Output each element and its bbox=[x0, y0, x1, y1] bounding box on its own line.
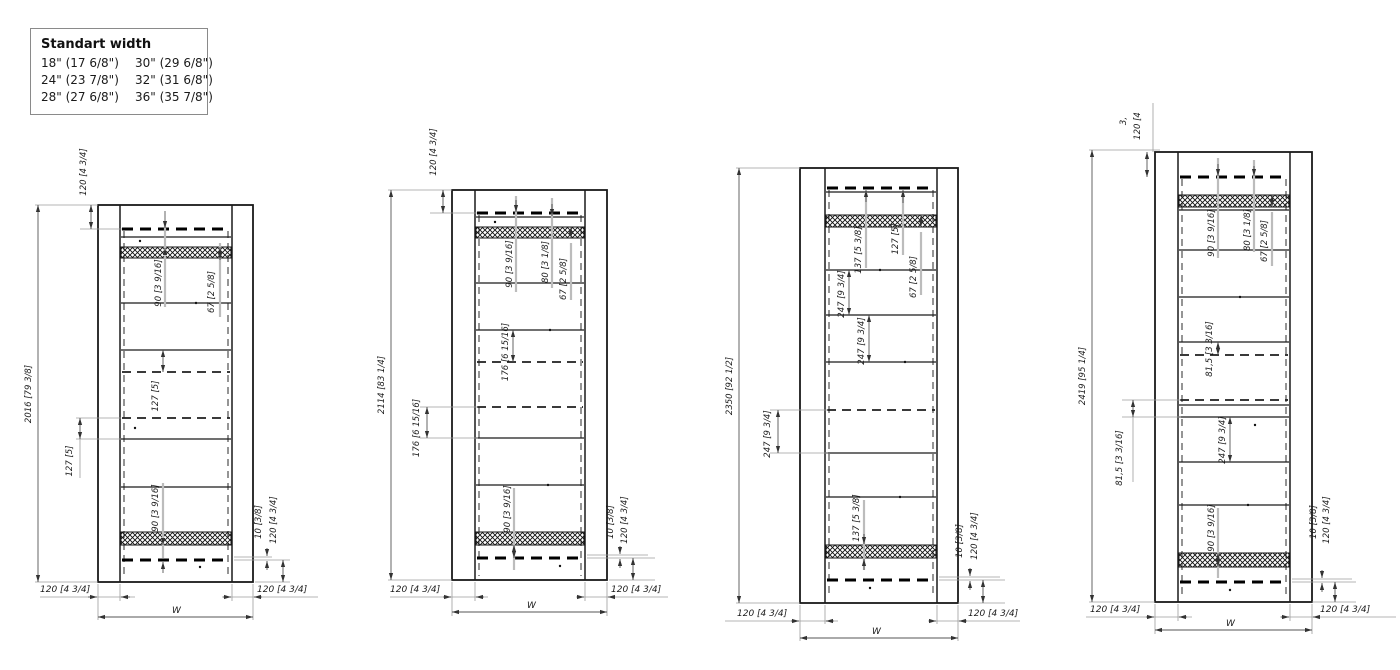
legend-item: 18" (17 6/8") bbox=[41, 56, 127, 70]
dim-label: 90 [3 9/16] bbox=[1207, 209, 1217, 256]
dim-label: 67 [2 5/8] bbox=[559, 258, 569, 300]
legend-item: 28" (27 6/8") bbox=[41, 90, 127, 104]
elevation-2419: 2419 [95 1/4] 3, 120 [4 90 [3 9/16] 80 [… bbox=[1078, 103, 1396, 634]
dim-label: 80 [3 1/8] bbox=[541, 241, 551, 283]
dim-label-height: 2114 [83 1/4] bbox=[377, 356, 387, 414]
dim-label-bottom-left: 120 [4 3/4] bbox=[390, 585, 441, 595]
dim-label: 90 [3 9/16] bbox=[503, 485, 513, 532]
legend-item: 24" (23 7/8") bbox=[41, 73, 127, 87]
dim-label-bottom-left: 120 [4 3/4] bbox=[40, 585, 91, 595]
dim-label: 247 [9 3/4] bbox=[1218, 416, 1228, 463]
dim-label-bottom-right: 120 [4 3/4] bbox=[611, 585, 662, 595]
dim-label: 81,5 [3 3/16] bbox=[1205, 321, 1215, 376]
door-frame bbox=[98, 205, 253, 582]
dim-label: 247 [9 3/4] bbox=[763, 410, 773, 457]
elevation-2114: 2114 [83 1/4] 120 [4 3/4] 90 [3 9/16] 80… bbox=[377, 128, 668, 616]
dim-label: 10 [3/8] bbox=[254, 505, 264, 539]
dim-label-bottom-left: 120 [4 3/4] bbox=[1090, 605, 1141, 615]
insulation-strip bbox=[826, 545, 936, 558]
dim-label: 120 [4 3/4] bbox=[970, 512, 980, 559]
dimensions: 2350 [92 1/2] 137 [5 3/8] 127 [5] 67 [2 … bbox=[725, 168, 1020, 641]
elevation-2016: 2016 [79 3/8] 120 [4 3/4] 90 [3 9/16] 67… bbox=[24, 148, 318, 620]
insulation-strip bbox=[121, 532, 231, 545]
dim-label-top-clipped: 3, bbox=[1119, 117, 1129, 125]
dimensions: 2016 [79 3/8] 120 [4 3/4] 90 [3 9/16] 67… bbox=[24, 148, 318, 620]
dim-label: 81,5 [3 3/16] bbox=[1115, 430, 1125, 485]
dim-label: 120 [4 3/4] bbox=[620, 496, 630, 543]
dim-label: 120 [4 3/4] bbox=[1322, 496, 1332, 543]
dim-label: 127 [5] bbox=[65, 446, 75, 477]
dim-label: 137 [5 3/8] bbox=[852, 494, 862, 541]
dim-label: 80 [3 1/8] bbox=[1243, 209, 1253, 251]
frame-outline bbox=[98, 205, 253, 582]
standard-width-legend: Standart width 18" (17 6/8") 30" (29 6/8… bbox=[30, 28, 208, 115]
dim-label: 137 [5 3/8] bbox=[854, 226, 864, 273]
dim-label: 176 [6 15/16] bbox=[501, 323, 511, 381]
drawing-sheet: 2016 [79 3/8] 120 [4 3/4] 90 [3 9/16] 67… bbox=[0, 0, 1400, 670]
dim-label-top-offset: 120 [4 3/4] bbox=[79, 148, 89, 195]
dim-label: 10 [3/8] bbox=[955, 524, 965, 558]
insulation-strip bbox=[1179, 195, 1289, 207]
dim-label: 67 [2 5/8] bbox=[1260, 220, 1270, 262]
dim-label-width: W bbox=[172, 606, 182, 616]
dim-label: 127 [5] bbox=[151, 381, 161, 412]
dim-label: 67 [2 5/8] bbox=[909, 256, 919, 298]
dim-label: 10 [3/8] bbox=[606, 505, 616, 539]
dim-label-height: 2016 [79 3/8] bbox=[24, 365, 34, 423]
dim-label: 90 [3 9/16] bbox=[151, 484, 161, 531]
dim-label: 67 [2 5/8] bbox=[207, 271, 217, 313]
dim-label: 10 [3/8] bbox=[1309, 505, 1319, 539]
dim-label: 90 [3 9/16] bbox=[154, 259, 164, 306]
door-frame bbox=[800, 168, 958, 603]
dim-label: 120 [4 3/4] bbox=[269, 496, 279, 543]
dim-label-bottom-right: 120 [4 3/4] bbox=[1320, 605, 1371, 615]
dim-label-bottom-right: 120 [4 3/4] bbox=[968, 609, 1019, 619]
dim-label: 127 [5] bbox=[891, 224, 901, 255]
legend-item: 30" (29 6/8") bbox=[135, 56, 213, 70]
dim-label: 90 [3 9/16] bbox=[1207, 504, 1217, 551]
dim-label: 176 [6 15/16] bbox=[412, 399, 422, 457]
dim-label-width: W bbox=[527, 601, 537, 611]
door-frame bbox=[452, 190, 607, 580]
frame-outline bbox=[800, 168, 958, 603]
dim-label-bottom-right: 120 [4 3/4] bbox=[257, 585, 308, 595]
dim-label-top-clipped: 120 [4 bbox=[1133, 112, 1143, 140]
dim-label-bottom-left: 120 [4 3/4] bbox=[737, 609, 788, 619]
dim-label-height: 2419 [95 1/4] bbox=[1078, 347, 1088, 405]
legend-item: 36" (35 7/8") bbox=[135, 90, 213, 104]
dim-label: 247 [9 3/4] bbox=[837, 270, 847, 317]
legend-title: Standart width bbox=[41, 37, 197, 52]
dim-label: 247 [9 3/4] bbox=[857, 317, 867, 364]
dim-label-width: W bbox=[872, 627, 882, 637]
dim-label-height: 2350 [92 1/2] bbox=[725, 357, 735, 415]
dim-label-top-offset: 120 [4 3/4] bbox=[429, 128, 439, 175]
insulation-strip bbox=[121, 247, 231, 258]
insulation-strip bbox=[826, 215, 936, 227]
dim-label-width: W bbox=[1226, 619, 1236, 629]
legend-item: 32" (31 6/8") bbox=[135, 73, 213, 87]
insulation-strip bbox=[476, 227, 584, 238]
insulation-strip bbox=[476, 532, 584, 545]
dim-label: 90 [3 9/16] bbox=[505, 240, 515, 287]
door-frame bbox=[1155, 152, 1312, 602]
insulation-strip bbox=[1179, 553, 1289, 567]
elevation-2350: 2350 [92 1/2] 137 [5 3/8] 127 [5] 67 [2 … bbox=[725, 168, 1020, 641]
